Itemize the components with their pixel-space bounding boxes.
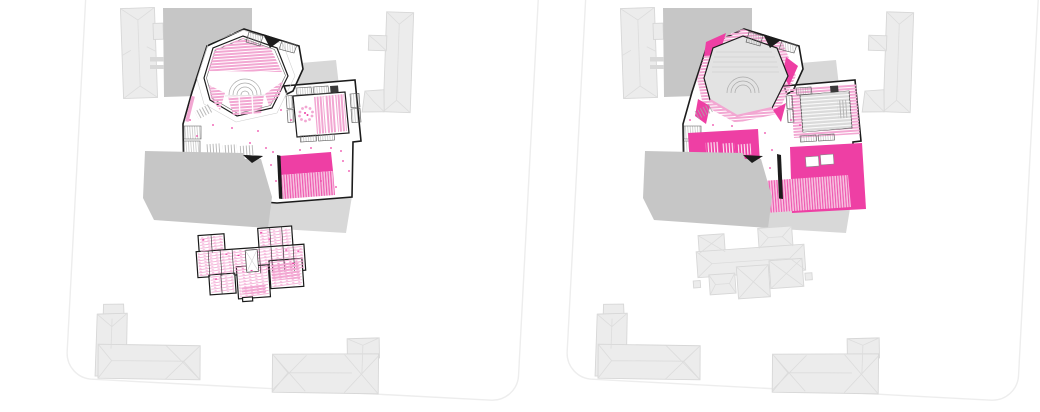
hall-stage bbox=[242, 285, 266, 295]
historic-building-plan bbox=[195, 225, 308, 304]
highlight-areas bbox=[277, 152, 335, 199]
architectural-site-plans bbox=[0, 0, 1040, 412]
chamber-hall-upper bbox=[786, 84, 860, 142]
canvas bbox=[0, 0, 1040, 412]
highlight-hatched bbox=[762, 175, 851, 213]
stalls-center bbox=[228, 95, 264, 115]
highlight-solid bbox=[279, 152, 333, 175]
site-plan-panel-left bbox=[66, 0, 542, 402]
hall-seating bbox=[271, 263, 300, 281]
highlight-hatched bbox=[281, 171, 335, 199]
historic-building-roof bbox=[690, 225, 814, 302]
chamber-seating-rows bbox=[314, 94, 347, 134]
site-plan-panel-right bbox=[566, 0, 1040, 402]
